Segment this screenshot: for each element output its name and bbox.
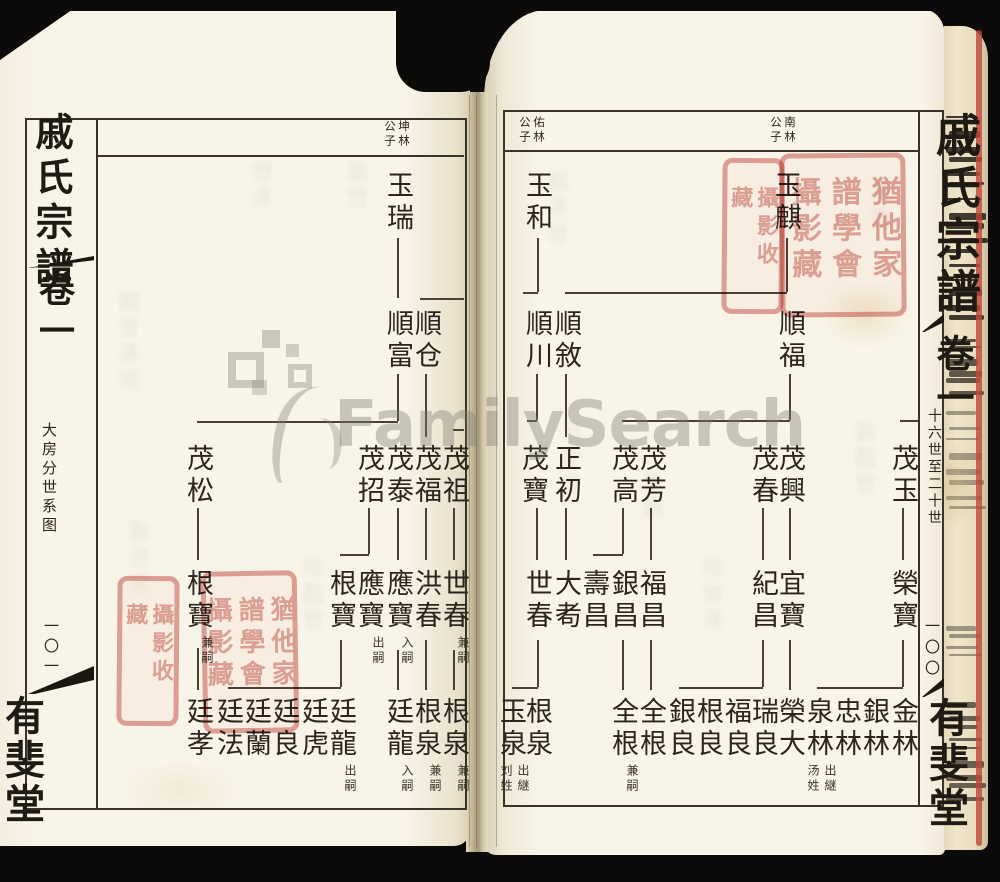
generation-range-label: 十六世至二十世 <box>924 408 944 527</box>
tree-node-name: 全根 <box>634 694 666 764</box>
tree-node-name: 茂祖 <box>437 441 469 511</box>
tree-connector <box>512 687 538 689</box>
hall-name-left: 有斐堂 <box>0 695 50 827</box>
tree-node-name: 根泉 <box>437 694 469 764</box>
spine-shadow-top <box>396 0 490 92</box>
tree-connector <box>536 374 538 420</box>
tree-connector <box>537 238 539 292</box>
tree-connector <box>622 640 624 690</box>
tree-connector <box>340 554 369 556</box>
page-number-right: 一〇〇 <box>922 618 943 681</box>
tree-connector <box>368 508 370 554</box>
tree-node-name: 茂松 <box>181 441 213 511</box>
tree-node-annotation: 出嗣 <box>342 764 358 810</box>
branch-header: 南林公子 <box>767 116 797 150</box>
section-label-left: 大房分世系图 <box>39 422 60 536</box>
fore-edge-streak <box>946 626 976 631</box>
gutter-crease <box>469 95 470 847</box>
tree-node-annotation: 出継汤姓 <box>802 764 838 798</box>
tree-node-name: 根泉 <box>520 694 552 764</box>
tree-connector <box>197 508 199 560</box>
tree-node-name: 銀林 <box>857 694 889 764</box>
tree-node-name: 茂興 <box>773 441 805 511</box>
tree-node-name: 金林 <box>886 694 918 764</box>
tree-node-annotation: 兼嗣 <box>427 764 443 810</box>
collection-seal-small: 攝影收藏 <box>116 576 179 727</box>
collection-seal-large: 猶他家譜學會攝影藏 <box>201 570 300 734</box>
tree-connector <box>565 374 567 437</box>
tree-node-name: 順仓 <box>409 306 441 376</box>
tree-connector <box>789 508 791 560</box>
tree-node-name: 壽昌 <box>577 566 609 636</box>
tree-node-annotation: 兼嗣 <box>624 764 640 810</box>
tree-node-annotation: 入嗣 <box>399 764 415 810</box>
tree-node-annotation: 入嗣 <box>399 636 415 682</box>
branch-header: 佑林公子 <box>516 116 546 150</box>
branch-header: 坤林公子 <box>381 120 411 154</box>
tree-node-name: 茂玉 <box>886 441 918 511</box>
tree-connector <box>397 238 399 298</box>
tree-connector <box>789 640 791 690</box>
collection-seal-small: 攝影收藏 <box>721 158 784 315</box>
volume-label-left: 卷一 <box>28 270 80 354</box>
tree-connector <box>425 508 427 560</box>
tree-connector <box>817 687 903 689</box>
tree-connector <box>650 640 652 690</box>
scan-background-top <box>0 0 1000 11</box>
tree-node-name: 茂芳 <box>634 441 666 511</box>
tree-node-name: 順川 <box>520 306 552 376</box>
tree-node-name: 福昌 <box>634 566 666 636</box>
tree-node-annotation: 兼嗣 <box>455 764 471 810</box>
tree-connector <box>397 508 399 560</box>
tree-connector <box>453 429 464 431</box>
tree-node-name: 茂寶 <box>516 441 548 511</box>
gutter-crease <box>476 95 477 847</box>
book-title-right: 戚氏宗譜 <box>922 112 987 320</box>
tree-node-name: 世春 <box>520 566 552 636</box>
tree-node-name: 玉和 <box>520 168 552 238</box>
scan-background-right <box>988 0 1000 882</box>
tree-connector <box>622 508 624 554</box>
tree-connector <box>523 292 538 294</box>
tree-connector <box>425 640 427 690</box>
tree-connector <box>536 508 538 560</box>
margin-divider-left-page <box>96 120 98 808</box>
tree-node-name: 宜寶 <box>773 566 805 636</box>
tree-connector <box>340 640 342 687</box>
tree-connector <box>789 374 791 420</box>
tree-node-name: 廷龍 <box>324 694 356 764</box>
tree-node-name: 應寶 <box>352 566 384 636</box>
tree-connector <box>425 374 427 437</box>
tree-node-name: 正初 <box>549 441 581 511</box>
tree-node-name: 順敘 <box>549 306 581 376</box>
tree-connector <box>902 640 904 687</box>
header-band-line-left-page <box>98 155 464 157</box>
tree-connector <box>397 374 399 421</box>
tree-node-annotation: 出継刘姓 <box>495 764 531 798</box>
header-band-line-right-page <box>505 150 919 152</box>
tree-connector <box>902 508 904 560</box>
fore-edge-streak <box>946 438 978 440</box>
tree-connector <box>622 420 790 422</box>
tree-node-name: 玉瑞 <box>381 168 413 238</box>
book-scan: 譜世系宗戚氏宗世系宗譜世戚世譜系世氏宗世世譜宗世系戚譜世系世 戚氏宗譜 卷一 大… <box>0 0 1000 882</box>
collection-seal-large: 猶他家譜學會攝影藏 <box>779 152 906 317</box>
tree-connector <box>453 508 455 560</box>
fore-edge-streak <box>946 646 978 649</box>
tree-node-name: 茂招 <box>352 441 384 511</box>
tree-connector <box>762 640 764 687</box>
fore-edge-streak <box>946 469 980 475</box>
tree-connector <box>197 421 398 423</box>
tree-connector <box>900 420 918 422</box>
tree-connector <box>762 508 764 560</box>
hall-name-right: 有斐堂 <box>916 697 974 832</box>
tree-node-name: 世春 <box>437 566 469 636</box>
scan-background-bottom <box>0 862 1000 882</box>
tree-connector <box>593 554 623 556</box>
tree-node-annotation: 兼嗣 <box>455 636 471 682</box>
tree-connector <box>527 420 537 422</box>
tree-connector <box>565 508 567 560</box>
tree-node-name: 榮寶 <box>886 566 918 636</box>
tree-node-annotation: 出嗣 <box>370 636 386 682</box>
tree-connector <box>420 298 464 300</box>
tree-connector <box>679 687 763 689</box>
tree-connector <box>650 508 652 560</box>
tree-connector <box>537 640 539 687</box>
page-number-left: 一〇一 <box>41 618 62 678</box>
